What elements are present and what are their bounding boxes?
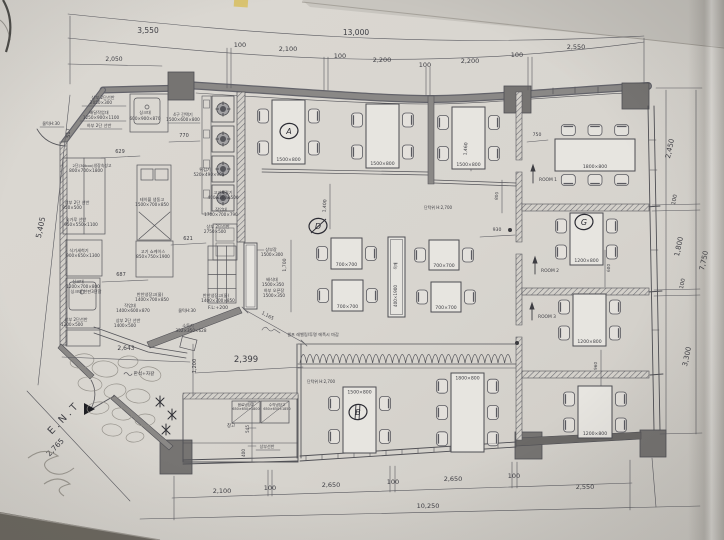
screenshot-root: 1500×8001500×8001500×8001800×8001200×800… <box>0 0 724 540</box>
vignette <box>0 0 724 540</box>
floor-plan-photo: 1500×8001500×8001500×8001800×8001200×800… <box>0 0 724 540</box>
paper-artifacts <box>0 0 724 540</box>
